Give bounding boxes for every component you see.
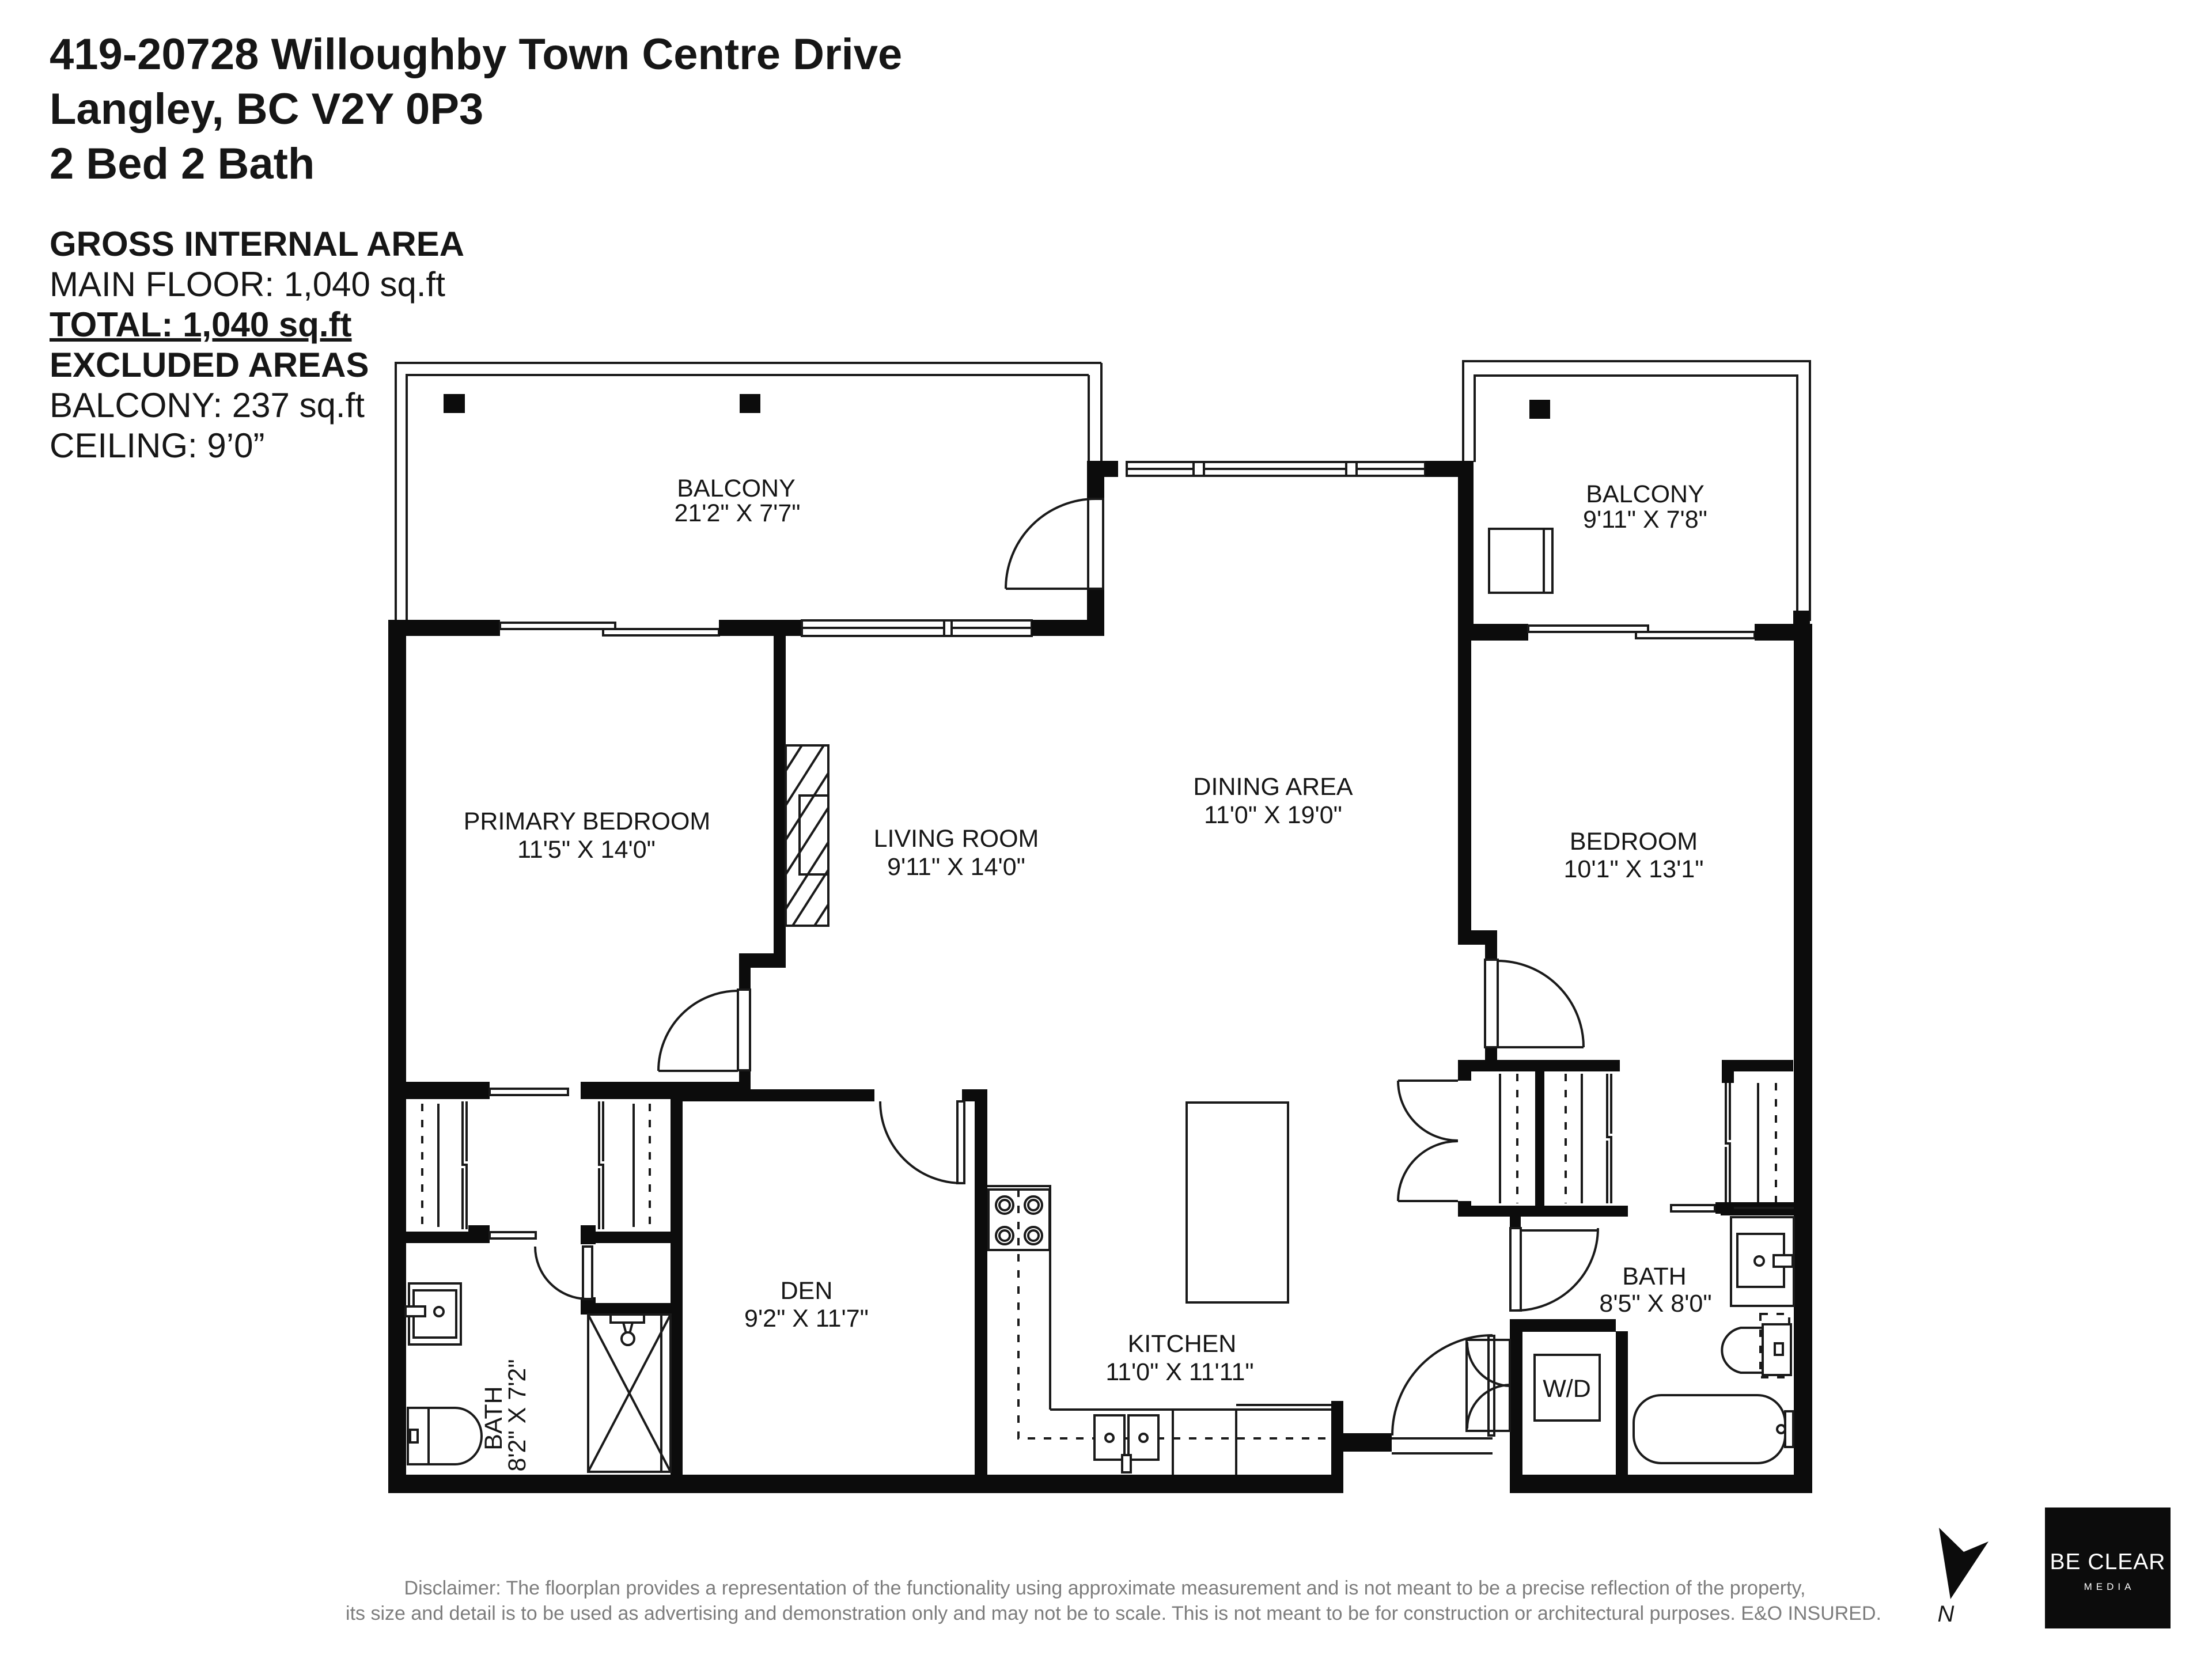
svg-text:Disclaimer: The floorplan prov: Disclaimer: The floorplan provides a rep…	[404, 1577, 1806, 1599]
svg-text:MAIN FLOOR: 1,040 sq.ft: MAIN FLOOR: 1,040 sq.ft	[50, 265, 445, 304]
svg-text:BE CLEAR: BE CLEAR	[2050, 1550, 2166, 1574]
svg-text:TOTAL: 1,040 sq.ft: TOTAL: 1,040 sq.ft	[50, 305, 352, 344]
svg-text:CEILING: 9’0”: CEILING: 9’0”	[50, 426, 264, 465]
svg-text:11'0" X 19'0": 11'0" X 19'0"	[1204, 801, 1342, 829]
svg-text:BALCONY: BALCONY	[677, 475, 796, 502]
svg-text:MEDIA: MEDIA	[2084, 1581, 2135, 1592]
svg-text:KITCHEN: KITCHEN	[1128, 1330, 1237, 1358]
svg-text:LIVING ROOM: LIVING ROOM	[874, 825, 1039, 853]
svg-text:W/D: W/D	[1543, 1375, 1591, 1403]
svg-text:DINING AREA: DINING AREA	[1193, 773, 1353, 801]
svg-text:11'0" X 11'11": 11'0" X 11'11"	[1105, 1358, 1253, 1386]
svg-text:DEN: DEN	[781, 1277, 833, 1305]
svg-text:9'2" X 11'7": 9'2" X 11'7"	[744, 1305, 869, 1332]
svg-text:10'1" X 13'1": 10'1" X 13'1"	[1563, 855, 1703, 883]
svg-text:9'11" X 14'0": 9'11" X 14'0"	[887, 853, 1025, 881]
svg-text:2 Bed 2 Bath: 2 Bed 2 Bath	[50, 139, 315, 188]
svg-text:BALCONY: BALCONY	[1586, 480, 1705, 508]
svg-text:BEDROOM: BEDROOM	[1570, 828, 1698, 855]
svg-text:PRIMARY BEDROOM: PRIMARY BEDROOM	[464, 808, 711, 835]
svg-text:N: N	[1938, 1601, 1955, 1627]
svg-text:EXCLUDED AREAS: EXCLUDED AREAS	[50, 346, 369, 384]
svg-text:its size and detail is to be u: its size and detail is to be used as adv…	[346, 1603, 1881, 1624]
svg-text:419-20728 Willoughby Town Cent: 419-20728 Willoughby Town Centre Drive	[50, 30, 902, 79]
svg-text:21'2" X 7'7": 21'2" X 7'7"	[674, 499, 800, 527]
svg-text:8'2" X 7'2": 8'2" X 7'2"	[503, 1359, 531, 1471]
svg-text:GROSS INTERNAL AREA: GROSS INTERNAL AREA	[50, 225, 464, 263]
svg-text:BALCONY: 237 sq.ft: BALCONY: 237 sq.ft	[50, 386, 365, 425]
svg-text:9'11" X 7'8": 9'11" X 7'8"	[1583, 506, 1707, 533]
svg-text:BATH: BATH	[1622, 1263, 1687, 1290]
svg-text:11'5" X 14'0": 11'5" X 14'0"	[517, 836, 656, 863]
svg-text:Langley, BC V2Y 0P3: Langley, BC V2Y 0P3	[50, 85, 483, 134]
svg-text:8'5" X 8'0": 8'5" X 8'0"	[1599, 1290, 1711, 1317]
